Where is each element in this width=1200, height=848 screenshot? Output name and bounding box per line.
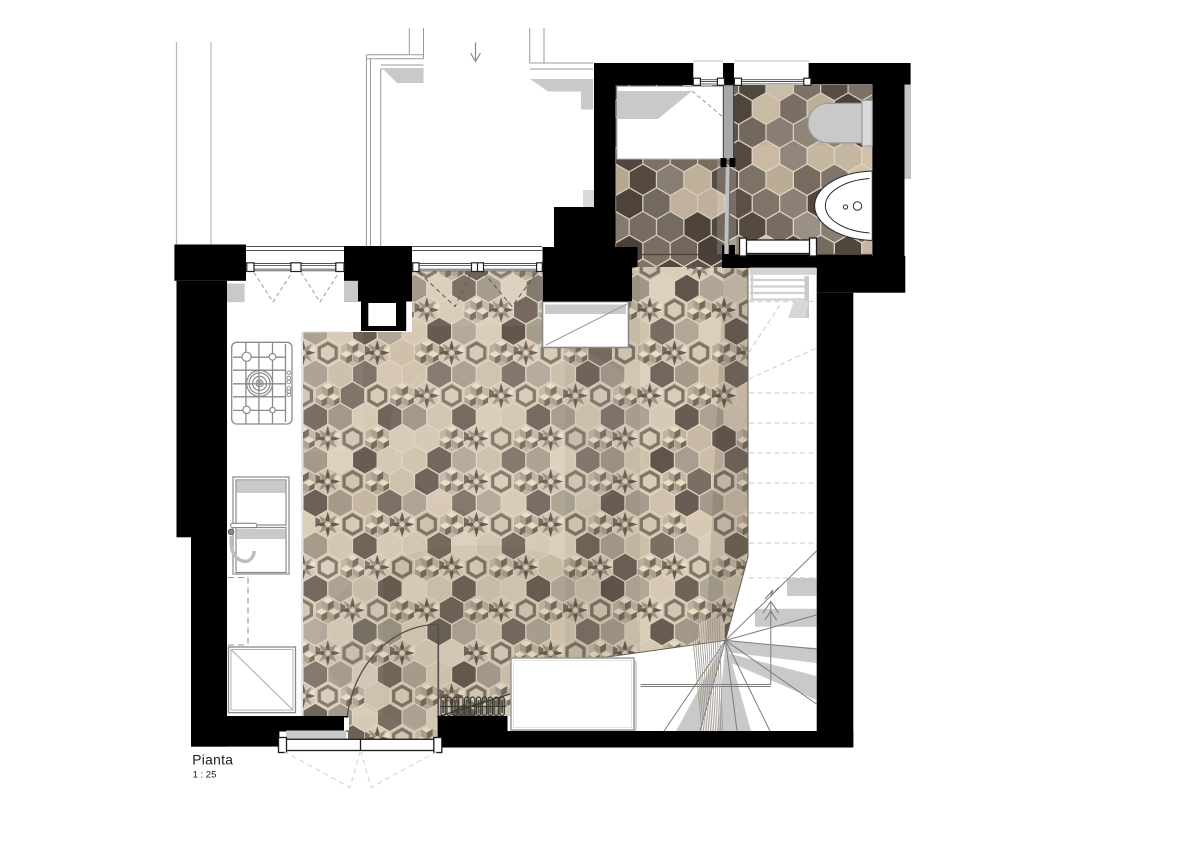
svg-text:1 : 25: 1 : 25 (193, 770, 217, 781)
svg-text:Pianta: Pianta (192, 753, 233, 768)
